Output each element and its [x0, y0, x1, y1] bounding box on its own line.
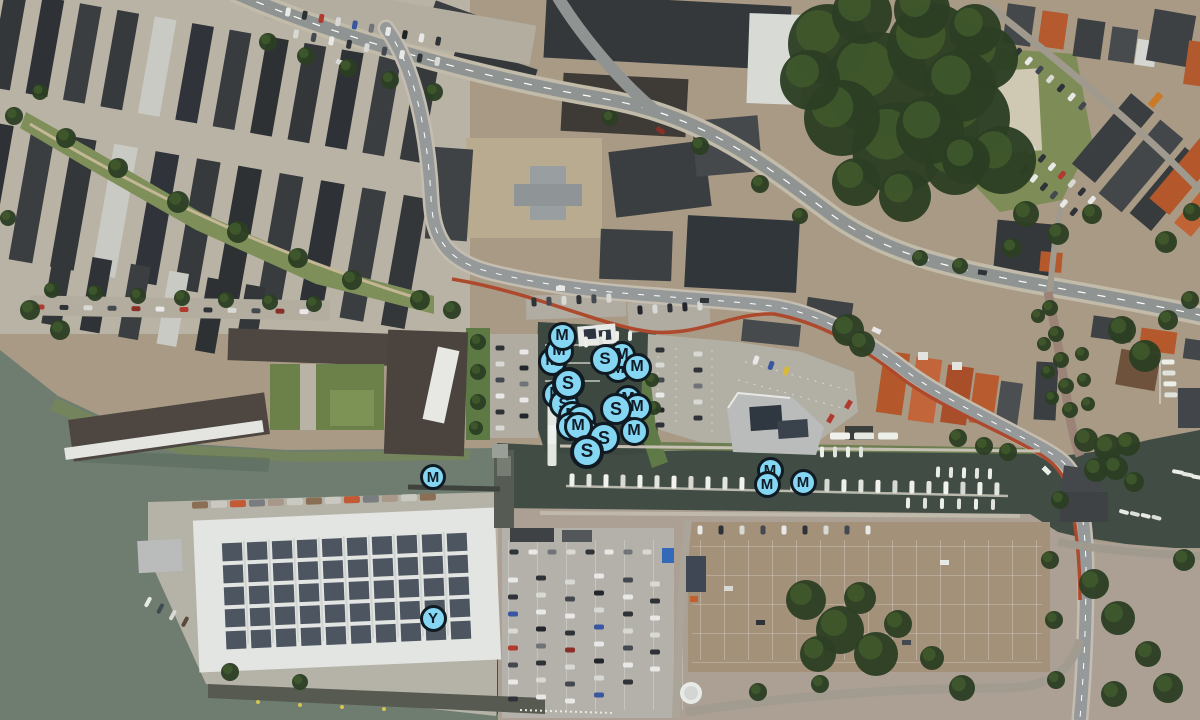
map-marker-M[interactable]: M [623, 353, 652, 382]
map-marker-S[interactable]: S [552, 367, 585, 400]
map-marker-M[interactable]: M [790, 469, 817, 496]
marker-layer: MMMMSMSMSMMSMMMSMMMSSMYMMM [0, 0, 1200, 720]
aerial-map-stage[interactable]: MMMMSMSMSMMSMMMSMMMSSMYMMM [0, 0, 1200, 720]
map-marker-M[interactable]: M [420, 464, 446, 490]
map-marker-S[interactable]: S [570, 435, 604, 469]
map-marker-M[interactable]: M [548, 322, 577, 351]
map-marker-M[interactable]: M [620, 417, 649, 446]
map-marker-Y[interactable]: Y [420, 605, 447, 632]
map-marker-S[interactable]: S [590, 344, 621, 375]
map-marker-M[interactable]: M [754, 471, 781, 498]
